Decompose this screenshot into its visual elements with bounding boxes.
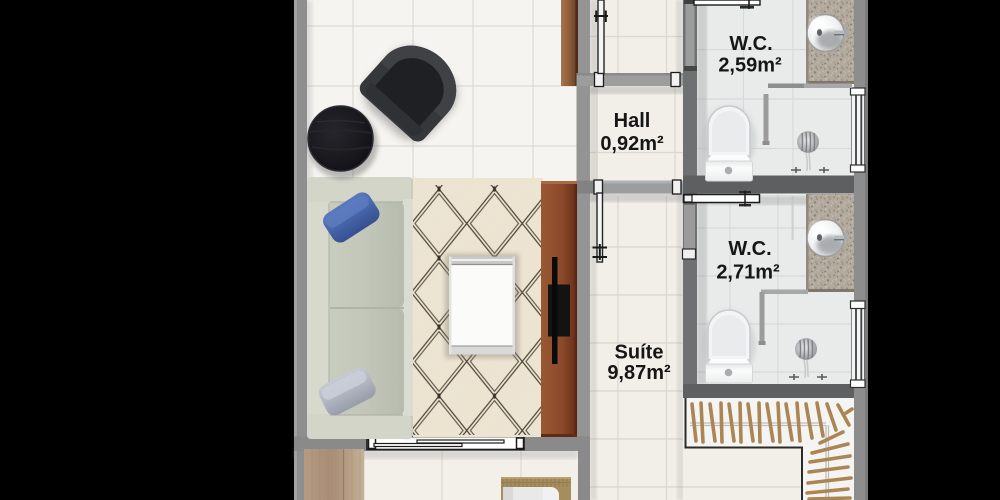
svg-text:9,87m²: 9,87m² xyxy=(607,362,671,384)
svg-text:Suíte: Suíte xyxy=(615,342,664,364)
svg-text:2,59m²: 2,59m² xyxy=(718,55,782,77)
svg-text:W.C.: W.C. xyxy=(729,33,772,55)
svg-text:0,92m²: 0,92m² xyxy=(600,133,664,155)
svg-text:2,71m²: 2,71m² xyxy=(716,262,780,284)
svg-text:W.C.: W.C. xyxy=(728,238,771,260)
svg-text:Hall: Hall xyxy=(614,110,651,132)
